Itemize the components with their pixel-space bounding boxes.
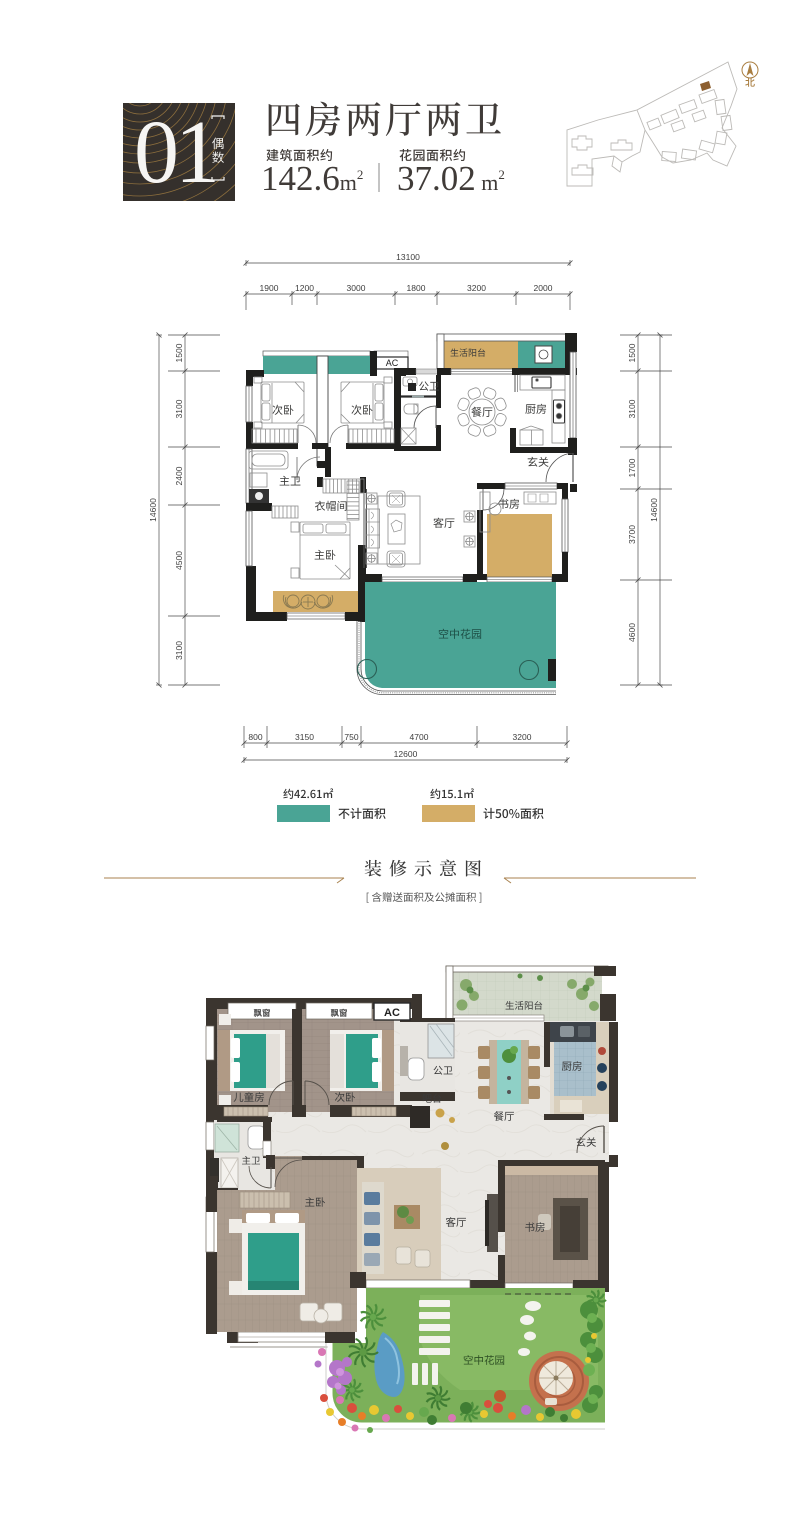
svg-text:3150: 3150	[295, 732, 314, 742]
svg-text:4700: 4700	[410, 732, 429, 742]
svg-text:2000: 2000	[534, 283, 553, 293]
svg-text:2400: 2400	[174, 466, 184, 485]
svg-text:12600: 12600	[394, 749, 418, 759]
svg-text:14600: 14600	[649, 498, 659, 522]
svg-text:37.02 m2: 37.02 m2	[397, 159, 505, 198]
svg-text:AC: AC	[384, 1007, 400, 1019]
svg-text:1800: 1800	[407, 283, 426, 293]
svg-text:3700: 3700	[627, 525, 637, 544]
svg-text:13100: 13100	[396, 252, 420, 262]
svg-text:1500: 1500	[174, 343, 184, 362]
svg-text:14600: 14600	[148, 498, 158, 522]
svg-text:1500: 1500	[627, 343, 637, 362]
svg-text:142.6m2: 142.6m2	[261, 159, 363, 198]
svg-text:3200: 3200	[513, 732, 532, 742]
svg-text:3200: 3200	[467, 283, 486, 293]
svg-text:01: 01	[134, 103, 216, 202]
svg-text:1900: 1900	[260, 283, 279, 293]
svg-text:4600: 4600	[627, 623, 637, 642]
svg-text:4500: 4500	[174, 551, 184, 570]
svg-text:3100: 3100	[174, 641, 184, 660]
svg-text:800: 800	[248, 732, 262, 742]
svg-text:750: 750	[344, 732, 358, 742]
svg-text:3100: 3100	[627, 399, 637, 418]
svg-text:1700: 1700	[627, 458, 637, 477]
svg-text:1200: 1200	[295, 283, 314, 293]
svg-text:AC: AC	[386, 358, 399, 368]
svg-text:3000: 3000	[347, 283, 366, 293]
svg-text:3100: 3100	[174, 399, 184, 418]
